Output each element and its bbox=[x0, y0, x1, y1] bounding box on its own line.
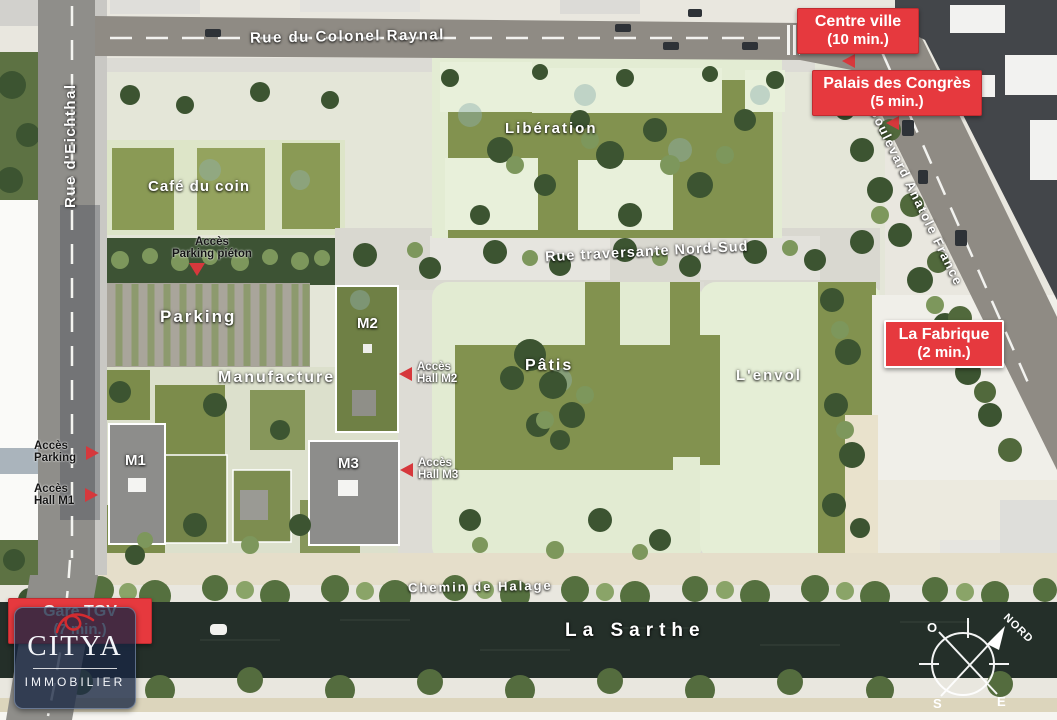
logo-subtitle: IMMOBILIER bbox=[15, 675, 135, 689]
access-label-parking-pieton: Accès Parking piéton bbox=[172, 236, 252, 261]
street-label-chemin-de-halage: Chemin de Halage bbox=[408, 578, 553, 596]
callout-centre-ville: Centre ville (10 min.) bbox=[797, 8, 919, 54]
callout-time: (2 min.) bbox=[894, 344, 994, 361]
access-label-hall-m2: Accès Hall M2 bbox=[417, 361, 457, 386]
area-label-patis: Pâtis bbox=[525, 357, 573, 375]
callout-time: (5 min.) bbox=[821, 93, 973, 110]
access-marker-parking bbox=[86, 446, 99, 460]
access-line: Accès bbox=[418, 457, 458, 469]
building-label-m1: M1 bbox=[125, 452, 146, 469]
street-label-colonel-raynal: Rue du Colonel Raynal bbox=[250, 26, 445, 46]
callout-title: Centre ville bbox=[806, 13, 910, 31]
access-line: Hall M1 bbox=[34, 495, 74, 507]
callout-la-fabrique: La Fabrique (2 min.) bbox=[884, 320, 1004, 368]
access-marker-hall-m1 bbox=[85, 488, 98, 502]
compass-north-label: NORD bbox=[1001, 612, 1036, 646]
access-marker-hall-m2 bbox=[399, 367, 412, 381]
access-line: Accès bbox=[34, 440, 76, 452]
access-line: Hall M3 bbox=[418, 469, 458, 481]
site-plan: Rue du Colonel Raynal Rue d'Eichthal Bou… bbox=[0, 0, 1057, 720]
access-line: Parking piéton bbox=[172, 248, 252, 260]
access-marker-hall-m3 bbox=[400, 463, 413, 477]
street-label-eichthal: Rue d'Eichthal bbox=[62, 83, 79, 208]
access-line: Parking bbox=[34, 452, 76, 464]
callout-title: La Fabrique bbox=[894, 326, 994, 344]
area-label-parking: Parking bbox=[160, 307, 236, 327]
callout-marker-centre-ville bbox=[842, 54, 855, 68]
access-label-hall-m1: Accès Hall M1 bbox=[34, 483, 74, 508]
logo-divider bbox=[33, 668, 117, 669]
access-label-hall-m3: Accès Hall M3 bbox=[418, 457, 458, 482]
building-label-m3: M3 bbox=[338, 455, 359, 472]
area-label-liberation: Libération bbox=[505, 120, 598, 137]
citya-logo: CITYA IMMOBILIER bbox=[14, 607, 136, 709]
access-line: Accès bbox=[34, 483, 74, 495]
citya-swoosh-icon bbox=[53, 610, 97, 640]
access-label-parking: Accès Parking bbox=[34, 440, 76, 465]
callout-time: (10 min.) bbox=[806, 31, 910, 48]
compass-west-label: O bbox=[927, 620, 937, 635]
callout-marker-palais bbox=[886, 116, 899, 130]
area-label-manufacture: Manufacture bbox=[218, 369, 335, 387]
area-label-cafe-du-coin: Café du coin bbox=[148, 178, 250, 195]
access-line: Accès bbox=[417, 361, 457, 373]
compass-south-label: S bbox=[933, 696, 942, 711]
access-line: Hall M2 bbox=[417, 373, 457, 385]
river-label-la-sarthe: La Sarthe bbox=[565, 620, 706, 642]
access-line: Accès bbox=[172, 236, 252, 248]
compass-rose: O S E NORD bbox=[905, 588, 1055, 720]
callout-palais-des-congres: Palais des Congrès (5 min.) bbox=[812, 70, 982, 116]
area-label-envol: L'envol bbox=[736, 367, 802, 384]
access-marker-parking-pieton bbox=[189, 263, 205, 276]
callout-title: Palais des Congrès bbox=[821, 75, 973, 93]
compass-east-label: E bbox=[997, 694, 1006, 709]
building-label-m2: M2 bbox=[357, 315, 378, 332]
